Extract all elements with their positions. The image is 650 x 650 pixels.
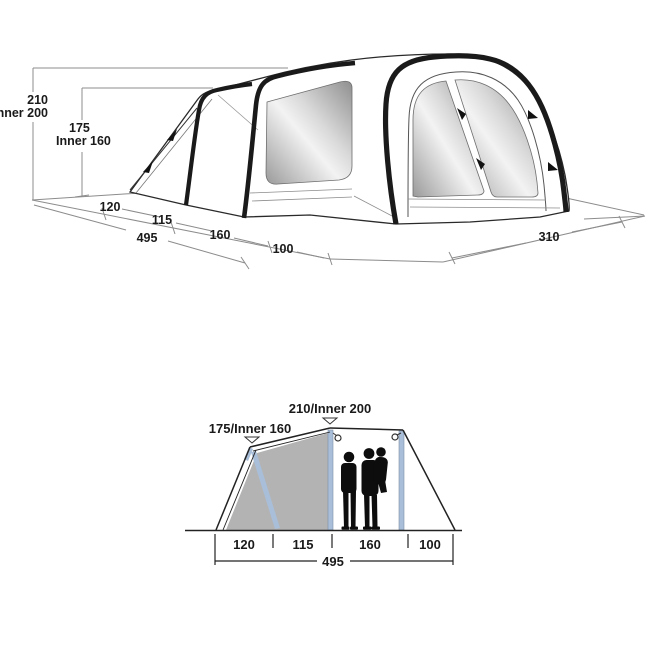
- lantern-hook-icon: [335, 435, 341, 441]
- dim-label-inner-160: Inner 160: [56, 134, 111, 148]
- dim-label-inner-200: Inner 200: [0, 106, 48, 120]
- dim-label-height-210: 210: [27, 93, 48, 107]
- middle-pole-blue: [328, 430, 333, 530]
- dim-label-seg-100: 100: [273, 242, 294, 256]
- dim-label-seg-160: 160: [210, 228, 231, 242]
- top-perspective-view: 210 Inner 200 175 Inner 160: [0, 54, 645, 269]
- triangle-marker-icon: [245, 437, 259, 443]
- right-pole-blue: [399, 431, 404, 530]
- side-elevation-view: 210/Inner 200 175/Inner 160: [185, 401, 462, 569]
- dim-label-width-310: 310: [539, 230, 560, 244]
- tent-dimensions-diagram: 210 Inner 200 175 Inner 160: [0, 0, 650, 650]
- dim-label-total-495: 495: [137, 231, 158, 245]
- peak-height-label: 210/Inner 200: [289, 401, 371, 416]
- tent-3d-body: [130, 54, 569, 224]
- porch-height-label: 175/Inner 160: [209, 421, 291, 436]
- triangle-marker-icon: [323, 418, 337, 424]
- inner-tent-panel: [226, 433, 328, 530]
- side-dim-495: 495: [322, 554, 344, 569]
- side-dim-120: 120: [233, 537, 255, 552]
- side-dim-115: 115: [293, 537, 314, 552]
- dim-label-seg-120: 120: [100, 200, 121, 214]
- dim-label-seg-115: 115: [152, 213, 172, 227]
- dim-label-height-175: 175: [69, 121, 90, 135]
- tent-dimensions-page: 210 Inner 200 175 Inner 160: [0, 0, 650, 650]
- lantern-hook-icon: [392, 434, 398, 440]
- people-silhouettes: [341, 447, 388, 530]
- side-dim-160: 160: [359, 537, 381, 552]
- side-dim-100: 100: [419, 537, 441, 552]
